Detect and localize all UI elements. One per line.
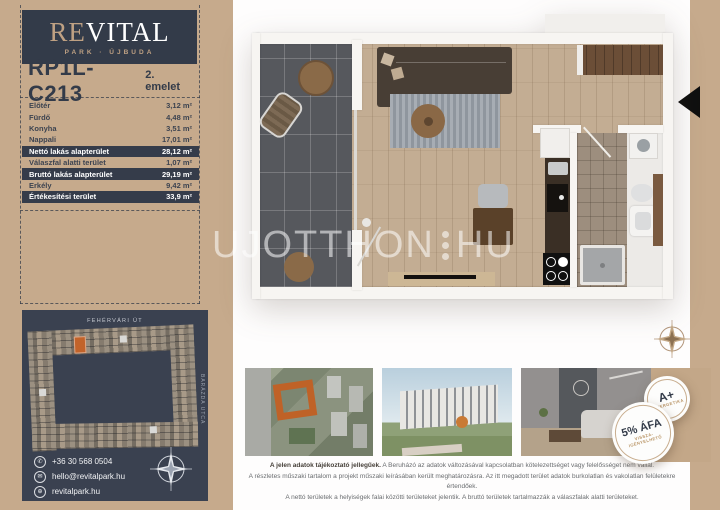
north-compass-icon (652, 318, 692, 360)
highlighted-unit-marker (74, 336, 87, 354)
row-value: 28,12 m² (162, 147, 192, 156)
disclaimer-line1: A jelen adatok tájékoztató jellegűek. A … (236, 461, 688, 472)
table-row-highlight: Értékesítési terület33,9 m² (22, 191, 199, 202)
disclaimer: A jelen adatok tájékoztató jellegűek. A … (236, 461, 688, 504)
row-value: 33,9 m² (166, 192, 192, 201)
disclaimer-line3: A nettó területek a helyiségek falai köz… (236, 493, 688, 504)
coffee-table-decor (424, 117, 433, 126)
contact-website[interactable]: ⊕revitalpark.hu (34, 486, 125, 497)
email-icon: ✉ (34, 471, 46, 483)
burner (558, 271, 568, 281)
wardrobe-edge (577, 45, 583, 75)
row-value: 3,12 m² (166, 101, 192, 110)
aerial-building (331, 412, 347, 436)
exterior-building (400, 385, 498, 430)
kitchen-sink (548, 162, 568, 175)
energy-rating-value: A+ (657, 388, 675, 404)
stair-core (120, 335, 127, 342)
aerial-building (349, 386, 363, 412)
wall-bottom (256, 287, 665, 299)
stair-core (150, 426, 157, 433)
balcony-table (298, 60, 334, 96)
interior-wall-decor (573, 380, 589, 396)
brand-wordmark-re: RE (49, 17, 86, 47)
interior-coffee-table (549, 430, 581, 442)
interior-plant (539, 408, 548, 417)
balcony-glass-door (354, 110, 357, 230)
watermark-dots (442, 231, 449, 260)
toilet (631, 184, 653, 202)
aerial-road (245, 368, 271, 456)
sidebar-dashed-divider-bottom (20, 303, 200, 304)
table-row: Konyha3,51 m² (22, 123, 199, 134)
aerial-building (353, 424, 367, 448)
vat-badge-sub2: IGÉNYELHETŐ (628, 434, 663, 449)
shower-drain (600, 263, 605, 268)
bathroom-sink-bowl (635, 212, 651, 230)
compass-icon (148, 445, 194, 493)
row-value: 9,42 m² (166, 181, 192, 190)
oven (547, 184, 568, 212)
exterior-autumn-tree (456, 416, 468, 428)
row-value: 3,51 m² (166, 124, 192, 133)
wardrobe (577, 45, 663, 75)
globe-icon: ⊕ (34, 486, 46, 498)
datasheet-page: REVITAL PARK · ÚJBUDA RP1L-C213 2. emele… (0, 0, 720, 510)
street-label-top: FEHÉRVÁRI ÚT (22, 318, 208, 324)
watermark-left: UJOTTHON (212, 224, 435, 267)
bathroom-vanity (653, 174, 663, 246)
brand-wordmark-vital: VITAL (86, 17, 170, 47)
burner (558, 257, 568, 267)
row-label: Konyha (29, 124, 57, 133)
vat-badge-title: 5% ÁFA (620, 416, 663, 439)
upper-service-block (545, 14, 665, 33)
aerial-highlighted-building (273, 379, 318, 420)
table-row: Nappali17,01 m² (22, 134, 199, 145)
watermark-right: HU (456, 224, 515, 267)
row-label: Fürdő (29, 113, 50, 122)
wall-kitchen-bath (570, 133, 577, 287)
wall-right (663, 33, 673, 299)
contact-phone-text: +36 30 568 0504 (52, 457, 112, 466)
row-label: Értékesítési terület (29, 192, 96, 201)
burner (546, 271, 556, 281)
row-value: 4,48 m² (166, 113, 192, 122)
row-label: Előtér (29, 101, 50, 110)
oven-knob (559, 195, 564, 200)
sofa-cushion-line (396, 62, 506, 63)
row-label: Nettó lakás alapterület (29, 147, 109, 156)
watermark: UJOTTHON HU (212, 224, 515, 267)
stair-core (39, 389, 46, 396)
contact-email-text: hello@revitalpark.hu (52, 472, 125, 481)
wall-bath-right (618, 125, 663, 133)
table-row: Előtér3,12 m² (22, 100, 199, 111)
thumbnail-building-exterior (382, 368, 512, 456)
aerial-building (327, 376, 341, 398)
vat-badge-sub1: VISSZA- (634, 431, 654, 442)
row-label: Bruttó lakás alapterület (29, 170, 112, 179)
thumbnail-aerial-view (245, 368, 373, 456)
table-row-highlight: Nettó lakás alapterület28,12 m² (22, 146, 199, 157)
table-row-highlight: Bruttó lakás alapterület29,19 m² (22, 168, 199, 179)
table-row: Fürdő4,48 m² (22, 111, 199, 122)
disclaimer-line2: A részletes műszaki tartalom a projekt m… (236, 472, 688, 493)
brand-wordmark: REVITAL (49, 19, 169, 46)
washing-machine-door (637, 139, 650, 152)
disclaimer-line1-rest: A Beruházó az adatok változásával kapcso… (381, 462, 654, 469)
aerial-park (289, 428, 315, 444)
kitchen-cabinet (540, 128, 570, 158)
disclaimer-bold: A jelen adatok tájékoztató jellegűek. (270, 462, 381, 469)
site-plan-block: FEHÉRVÁRI ÚT BARÁZDA UTCA ✆+36 30 568 05… (22, 310, 208, 501)
row-value: 17,01 m² (162, 135, 192, 144)
contact-website-text: revitalpark.hu (52, 487, 100, 496)
sidebar-dashed-divider-middle (20, 210, 200, 211)
street-label-right: BARÁZDA UTCA (199, 374, 205, 424)
wall-balcony-upper (352, 40, 362, 110)
building-footprint (27, 324, 198, 451)
contact-email[interactable]: ✉hello@revitalpark.hu (34, 471, 125, 482)
row-value: 29,19 m² (162, 170, 192, 179)
sidebar-dashed-border-left (20, 5, 21, 304)
contact-phone[interactable]: ✆+36 30 568 0504 (34, 456, 125, 467)
table-row: Válaszfal alatti terület1,07 m² (22, 157, 199, 168)
interior-ceiling-light (609, 370, 643, 379)
sidebar-dashed-border-right (199, 5, 200, 304)
dining-chair (478, 184, 508, 208)
row-label: Nappali (29, 135, 56, 144)
row-label: Erkély (29, 181, 52, 190)
unit-floor: 2. emelet (145, 69, 191, 93)
table-row: Erkély9,42 m² (22, 180, 199, 191)
contact-list: ✆+36 30 568 0504 ✉hello@revitalpark.hu ⊕… (34, 456, 125, 497)
burner (546, 257, 556, 267)
rug (390, 94, 500, 148)
phone-icon: ✆ (34, 456, 46, 468)
unit-header: RP1L-C213 2. emelet (22, 64, 197, 98)
building-wing-east (170, 328, 199, 433)
wall-top (256, 33, 665, 44)
tv (404, 275, 476, 279)
row-value: 1,07 m² (166, 158, 192, 167)
row-label: Válaszfal alatti terület (29, 158, 106, 167)
area-table: Előtér3,12 m² Fürdő4,48 m² Konyha3,51 m²… (22, 100, 199, 203)
